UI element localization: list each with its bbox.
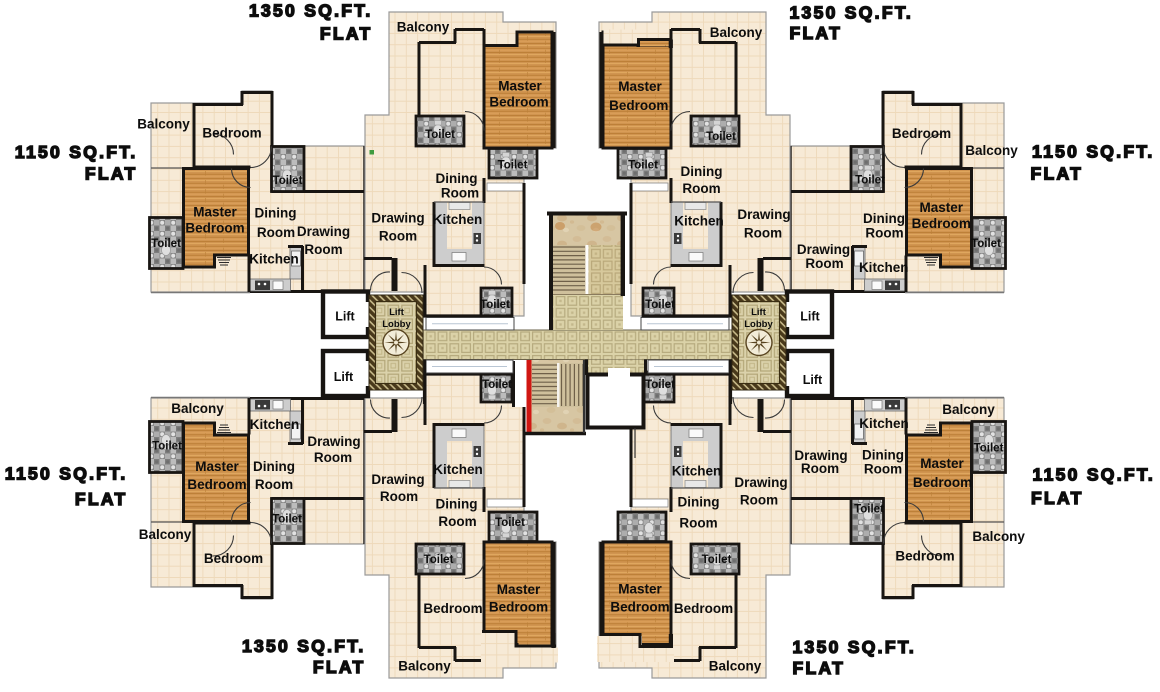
svg-text:Lift: Lift	[334, 370, 354, 384]
svg-text:Toilet: Toilet	[855, 175, 885, 187]
svg-text:FLAT: FLAT	[1031, 488, 1084, 508]
svg-text:Dining: Dining	[255, 206, 297, 221]
svg-text:Lift: Lift	[751, 307, 767, 318]
svg-text:Room: Room	[865, 226, 903, 241]
svg-text:Balcony: Balcony	[965, 143, 1018, 158]
svg-text:Bedroom: Bedroom	[489, 600, 548, 615]
svg-text:Dining: Dining	[681, 164, 723, 179]
svg-text:FLAT: FLAT	[790, 23, 843, 43]
svg-text:Bedroom: Bedroom	[674, 601, 733, 616]
svg-text:Master: Master	[920, 200, 964, 215]
svg-text:Room: Room	[744, 226, 782, 241]
svg-text:Balcony: Balcony	[137, 117, 190, 132]
svg-text:Room: Room	[304, 242, 342, 257]
svg-text:Bedroom: Bedroom	[912, 216, 971, 231]
svg-text:Toilet: Toilet	[425, 129, 455, 141]
svg-text:Kitchen: Kitchen	[249, 252, 299, 267]
svg-text:Dining: Dining	[862, 448, 904, 463]
svg-text:FLAT: FLAT	[75, 489, 128, 509]
svg-text:Toilet: Toilet	[645, 379, 675, 391]
svg-text:Room: Room	[438, 514, 476, 529]
svg-text:Lobby: Lobby	[744, 319, 773, 330]
svg-text:Room: Room	[257, 225, 295, 240]
svg-text:Bedroom: Bedroom	[610, 600, 669, 615]
svg-text:Lift: Lift	[803, 373, 823, 387]
svg-text:Drawing: Drawing	[737, 207, 790, 222]
svg-text:Kitchen: Kitchen	[433, 212, 483, 227]
svg-text:Lobby: Lobby	[382, 319, 411, 330]
svg-text:1350 SQ.FT.: 1350 SQ.FT.	[790, 3, 914, 23]
svg-text:1350 SQ.FT.: 1350 SQ.FT.	[249, 1, 373, 21]
svg-text:Room: Room	[314, 450, 352, 465]
svg-text:Drawing: Drawing	[307, 434, 360, 449]
svg-text:Balcony: Balcony	[171, 401, 224, 416]
svg-text:Room: Room	[441, 186, 479, 201]
svg-text:Toilet: Toilet	[628, 160, 658, 172]
svg-text:Balcony: Balcony	[709, 659, 762, 674]
svg-text:Toilet: Toilet	[424, 554, 454, 566]
svg-text:Dining: Dining	[863, 211, 905, 226]
svg-text:Bedroom: Bedroom	[913, 475, 972, 490]
svg-text:Room: Room	[380, 489, 418, 504]
svg-text:Room: Room	[864, 462, 902, 477]
svg-text:Room: Room	[379, 229, 417, 244]
svg-text:Bedroom: Bedroom	[204, 551, 263, 566]
svg-text:Room: Room	[801, 461, 839, 476]
svg-text:Bedroom: Bedroom	[895, 549, 954, 564]
svg-text:Drawing: Drawing	[371, 211, 424, 226]
svg-text:Balcony: Balcony	[139, 527, 192, 542]
svg-text:Kitchen: Kitchen	[859, 260, 909, 275]
svg-text:Master: Master	[920, 456, 964, 471]
svg-text:Room: Room	[255, 477, 293, 492]
svg-text:FLAT: FLAT	[320, 24, 373, 44]
svg-text:Toilet: Toilet	[702, 554, 732, 566]
svg-text:Bedroom: Bedroom	[892, 126, 951, 141]
svg-text:Room: Room	[679, 516, 717, 531]
svg-text:Dining: Dining	[253, 459, 295, 474]
svg-text:1150 SQ.FT.: 1150 SQ.FT.	[1032, 142, 1155, 162]
svg-text:Lift: Lift	[800, 310, 820, 324]
svg-text:FLAT: FLAT	[793, 658, 846, 678]
svg-text:Kitchen: Kitchen	[433, 462, 483, 477]
svg-text:1150 SQ.FT.: 1150 SQ.FT.	[15, 142, 138, 162]
svg-text:Lift: Lift	[389, 307, 405, 318]
svg-text:Balcony: Balcony	[710, 25, 763, 40]
svg-text:Kitchen: Kitchen	[250, 417, 300, 432]
svg-text:Dining: Dining	[436, 171, 478, 186]
svg-text:Master: Master	[193, 205, 237, 220]
svg-text:Toilet: Toilet	[273, 175, 303, 187]
svg-text:Toilet: Toilet	[645, 299, 675, 311]
svg-text:Master: Master	[618, 582, 662, 597]
svg-text:Kitchen: Kitchen	[674, 214, 724, 229]
svg-text:Toilet: Toilet	[971, 238, 1001, 250]
svg-text:Master: Master	[195, 459, 239, 474]
svg-text:Bedroom: Bedroom	[489, 95, 548, 110]
svg-text:Toilet: Toilet	[974, 443, 1004, 455]
svg-text:Bedroom: Bedroom	[185, 221, 244, 236]
svg-text:Toilet: Toilet	[151, 238, 181, 250]
svg-text:Kitchen: Kitchen	[859, 416, 909, 431]
svg-text:Drawing: Drawing	[797, 242, 850, 257]
svg-text:Bedroom: Bedroom	[423, 601, 482, 616]
svg-text:Balcony: Balcony	[397, 20, 450, 35]
svg-text:Master: Master	[497, 582, 541, 597]
svg-text:Toilet: Toilet	[495, 517, 525, 529]
svg-text:Toilet: Toilet	[854, 504, 884, 516]
svg-text:Balcony: Balcony	[972, 529, 1025, 544]
svg-text:Kitchen: Kitchen	[672, 464, 722, 479]
svg-text:FLAT: FLAT	[313, 657, 366, 677]
svg-text:Balcony: Balcony	[942, 402, 995, 417]
svg-text:1150 SQ.FT.: 1150 SQ.FT.	[1033, 465, 1156, 485]
svg-text:FLAT: FLAT	[85, 164, 138, 184]
svg-text:Master: Master	[498, 79, 542, 94]
svg-text:Toilet: Toilet	[480, 299, 510, 311]
svg-text:Bedroom: Bedroom	[609, 98, 668, 113]
svg-text:1350 SQ.FT.: 1350 SQ.FT.	[793, 637, 917, 657]
svg-text:Room: Room	[740, 493, 778, 508]
svg-text:1350 SQ.FT.: 1350 SQ.FT.	[242, 636, 366, 656]
svg-text:Drawing: Drawing	[734, 475, 787, 490]
svg-text:Balcony: Balcony	[398, 659, 451, 674]
svg-text:1150 SQ.FT.: 1150 SQ.FT.	[5, 464, 128, 484]
svg-text:Dining: Dining	[436, 497, 478, 512]
svg-text:Master: Master	[618, 79, 662, 94]
svg-text:Toilet: Toilet	[706, 131, 736, 143]
svg-text:Room: Room	[805, 256, 843, 271]
svg-text:Room: Room	[682, 181, 720, 196]
svg-text:Toilet: Toilet	[272, 514, 302, 526]
svg-text:Lift: Lift	[335, 310, 355, 324]
svg-text:Drawing: Drawing	[297, 224, 350, 239]
svg-text:Drawing: Drawing	[371, 472, 424, 487]
svg-text:Toilet: Toilet	[482, 379, 512, 391]
svg-text:Toilet: Toilet	[152, 441, 182, 453]
svg-text:Bedroom: Bedroom	[187, 477, 246, 492]
svg-text:Bedroom: Bedroom	[202, 126, 261, 141]
svg-text:Dining: Dining	[678, 495, 720, 510]
svg-text:FLAT: FLAT	[1031, 164, 1084, 184]
svg-text:Toilet: Toilet	[498, 160, 528, 172]
